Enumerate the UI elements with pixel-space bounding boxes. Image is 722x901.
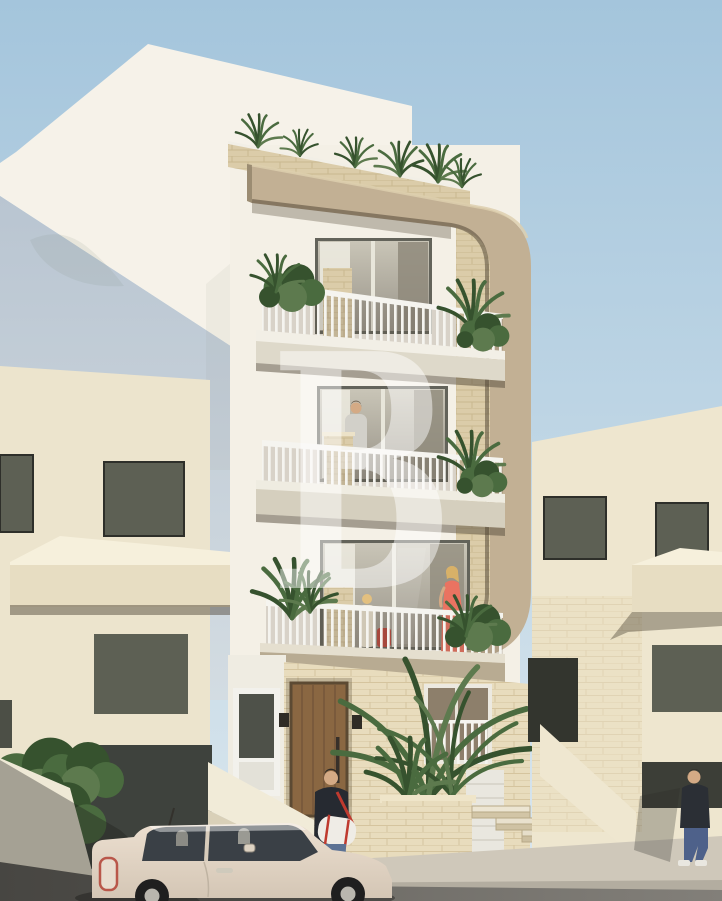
wall-lamp xyxy=(279,713,289,727)
front-hubcap xyxy=(341,887,356,901)
window xyxy=(104,462,184,536)
window xyxy=(652,645,722,712)
sidewalk-man-head xyxy=(688,771,701,784)
window xyxy=(0,700,12,748)
shoe xyxy=(695,860,707,866)
sidewalk-man-hoodie xyxy=(680,784,710,828)
tail-light xyxy=(100,858,117,890)
window xyxy=(94,634,188,714)
shoe xyxy=(678,860,690,866)
entrance-man-head xyxy=(324,771,338,785)
window xyxy=(0,455,33,532)
side-mirror xyxy=(244,844,255,852)
frame-end-cap xyxy=(247,164,252,203)
architectural-render: B xyxy=(0,0,722,901)
wall-lamp xyxy=(352,715,362,729)
window xyxy=(544,497,606,559)
doorway xyxy=(528,658,578,742)
door-handle xyxy=(216,868,233,873)
watermark-letter: B xyxy=(270,283,454,665)
headrest xyxy=(176,830,188,846)
